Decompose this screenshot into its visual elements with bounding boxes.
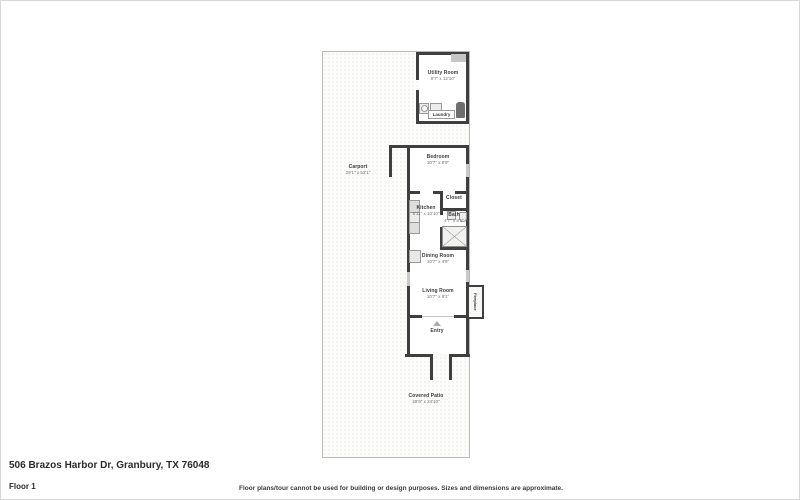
wall	[449, 354, 470, 357]
washer-door-icon	[421, 105, 428, 112]
fireplace-label: Fireplace	[473, 293, 478, 311]
wall-post	[430, 354, 433, 380]
utility-equipment	[451, 54, 466, 62]
wall	[407, 315, 422, 318]
entry-arrow-icon	[433, 321, 441, 326]
wall-carport-stub	[389, 145, 392, 177]
wall	[466, 145, 469, 164]
wall	[455, 191, 469, 194]
room-label-carport: Carport 29'1" x 53'1"	[346, 164, 371, 176]
fireplace: Fireplace	[467, 285, 484, 319]
room-label-bath: Bath 4'7" x 8'1"	[444, 212, 464, 224]
property-address: 506 Brazos Harbor Dr, Granbury, TX 76048	[9, 460, 209, 471]
room-label-closet: Closet	[446, 195, 462, 201]
wall	[416, 121, 469, 124]
wall	[407, 286, 410, 357]
laundry-label: Laundry	[433, 112, 451, 117]
wall-post	[449, 354, 452, 380]
disclaimer-text: Floor plans/tour cannot be used for buil…	[1, 485, 800, 492]
wall	[389, 145, 469, 148]
laundry-label-box: Laundry	[428, 110, 455, 119]
window	[466, 270, 469, 282]
floorplan-page: Laundry Fireplace Utility Room 8'7" x 12…	[0, 0, 800, 500]
room-label-patio: Covered Patio 28'9" x 24'10"	[409, 393, 444, 405]
room-label-bedroom: Bedroom 10'7" x 8'9"	[427, 154, 450, 166]
entry-threshold	[422, 316, 454, 317]
wall	[407, 191, 420, 194]
wall	[405, 354, 432, 357]
room-label-utility: Utility Room 8'7" x 12'10"	[428, 70, 459, 82]
cabinet-icon	[409, 250, 421, 263]
wall	[440, 247, 469, 250]
lot-area: Laundry Fireplace Utility Room 8'7" x 12…	[322, 51, 470, 458]
room-label-dining: Dining Room 10'7" x 4'9"	[422, 253, 454, 265]
window	[407, 272, 410, 286]
wall	[440, 191, 443, 215]
room-label-living: Living Room 10'7" x 8'1"	[422, 288, 453, 300]
window	[466, 164, 469, 177]
shower	[442, 226, 467, 247]
room-label-kitchen: Kitchen 5'11" x 10'10"	[413, 205, 440, 217]
wall	[466, 52, 469, 124]
wall	[416, 52, 419, 80]
room-label-entry: Entry	[430, 328, 443, 334]
water-heater-icon	[456, 102, 465, 118]
